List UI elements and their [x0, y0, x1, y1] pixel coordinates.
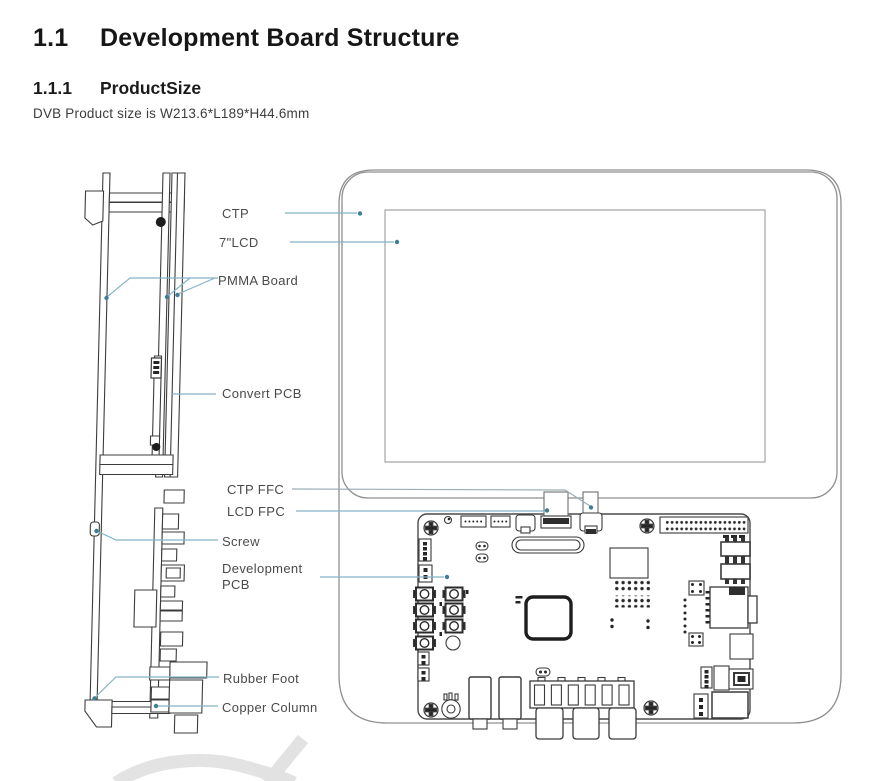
jumper-pads	[536, 668, 550, 676]
av-connector-row	[530, 678, 636, 740]
pcb-front-view	[414, 492, 758, 739]
structure-diagram	[0, 0, 879, 781]
connector-side	[150, 667, 170, 680]
label-copper-column: Copper Column	[222, 700, 318, 716]
label-ctp-ffc: CTP FFC	[227, 482, 284, 498]
top-bracket	[85, 191, 104, 225]
speaker-hole	[446, 636, 460, 650]
label-lcd-fpc: LCD FPC	[227, 504, 285, 520]
rubber-foot-side	[170, 662, 207, 678]
watermark	[116, 739, 303, 781]
document-page: 1.1Development Board Structure 1.1.1Prod…	[0, 0, 879, 781]
pcb-component	[445, 517, 452, 524]
jumper-block	[689, 633, 703, 646]
screw-icon	[640, 519, 654, 533]
pmma-panel-side	[90, 173, 110, 700]
connector-side	[134, 590, 157, 627]
screw-side	[90, 522, 99, 536]
spacer-bar	[100, 465, 173, 475]
bottom-connector-side	[174, 715, 197, 733]
rubber-foot-left	[84, 700, 112, 727]
memory-chip	[610, 548, 648, 578]
dsub-connector	[512, 537, 584, 553]
jumper-block	[689, 581, 704, 595]
screw-icon	[424, 703, 438, 717]
screw-icon	[644, 701, 658, 715]
label-development-pcb: Development PCB	[222, 561, 302, 593]
pin-connector	[491, 516, 510, 527]
pcb-component	[730, 634, 753, 659]
lcd-fpc-tab	[544, 492, 568, 518]
ctp-ffc-connector	[580, 513, 602, 534]
connector-side	[164, 490, 184, 503]
pin-header-vertical	[419, 565, 432, 582]
label-rubber-foot: Rubber Foot	[223, 671, 299, 687]
lcd-screen-area	[385, 210, 765, 462]
screw-icon	[424, 521, 438, 535]
usb-connector	[516, 515, 535, 533]
pin-connector	[461, 516, 486, 527]
bottom-connector-side	[169, 680, 203, 713]
connector-side	[151, 687, 169, 699]
label-ctp: CTP	[222, 206, 249, 222]
label-screw: Screw	[222, 534, 260, 550]
spacer-bar	[100, 455, 173, 465]
pin-header-vertical	[419, 539, 431, 561]
connector-cluster	[694, 692, 748, 718]
lcd-fpc-connector	[541, 516, 571, 528]
connector-cluster	[701, 666, 753, 690]
side-connector-stubs	[159, 514, 186, 661]
label-convert-pcb: Convert PCB	[222, 386, 302, 402]
side-view	[72, 173, 219, 733]
label-7lcd: 7"LCD	[219, 235, 259, 251]
power-jack	[442, 693, 460, 718]
label-pmma-board: PMMA Board	[218, 273, 298, 289]
